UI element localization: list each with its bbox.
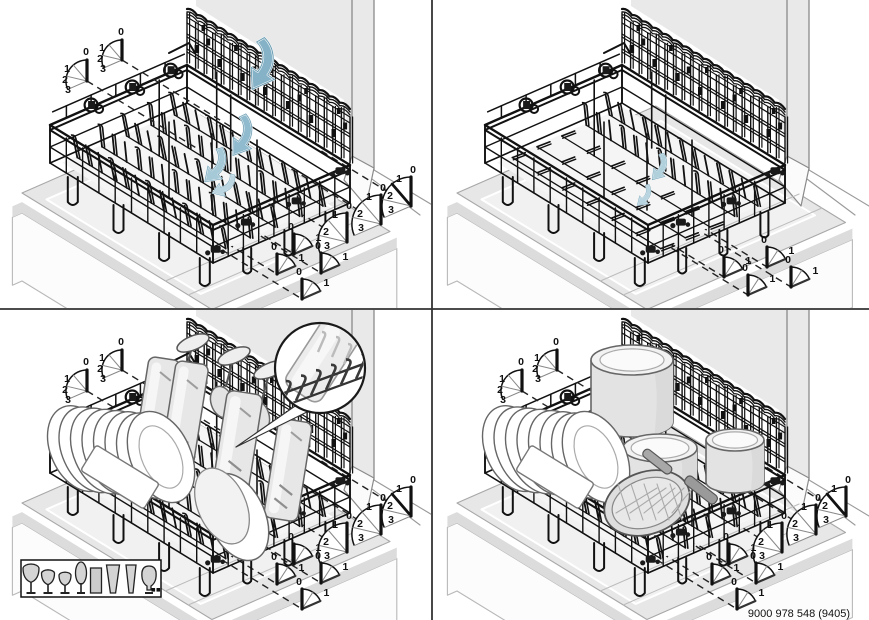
svg-text:1: 1 xyxy=(396,173,402,185)
svg-text:3: 3 xyxy=(324,550,330,562)
svg-text:0: 0 xyxy=(380,182,386,194)
svg-text:0: 0 xyxy=(83,356,89,368)
svg-text:0: 0 xyxy=(271,241,277,253)
svg-text:3: 3 xyxy=(65,84,71,96)
svg-text:2: 2 xyxy=(357,208,363,220)
svg-text:1: 1 xyxy=(332,519,338,531)
svg-text:3: 3 xyxy=(388,514,394,526)
svg-text:2: 2 xyxy=(387,190,393,202)
svg-text:9000 978 548 (9405): 9000 978 548 (9405) xyxy=(748,608,850,620)
svg-text:0: 0 xyxy=(718,244,724,256)
svg-text:1: 1 xyxy=(767,519,773,531)
svg-text:1: 1 xyxy=(342,251,348,263)
svg-text:0: 0 xyxy=(296,576,302,588)
svg-text:0: 0 xyxy=(288,531,294,543)
svg-text:1: 1 xyxy=(831,483,837,495)
svg-text:1: 1 xyxy=(777,561,783,573)
svg-text:0: 0 xyxy=(346,200,352,212)
svg-text:1: 1 xyxy=(812,265,818,277)
svg-text:3: 3 xyxy=(358,532,364,544)
svg-text:0: 0 xyxy=(781,510,787,522)
svg-text:3: 3 xyxy=(823,514,829,526)
svg-text:0: 0 xyxy=(315,550,321,562)
svg-text:1: 1 xyxy=(342,561,348,573)
svg-text:1: 1 xyxy=(323,277,329,289)
svg-text:0: 0 xyxy=(723,531,729,543)
svg-text:0: 0 xyxy=(731,576,737,588)
svg-text:1: 1 xyxy=(366,501,372,513)
svg-text:1: 1 xyxy=(801,501,807,513)
svg-text:0: 0 xyxy=(553,336,559,348)
svg-text:1: 1 xyxy=(323,587,329,599)
svg-text:1: 1 xyxy=(332,209,338,221)
svg-text:2: 2 xyxy=(792,518,798,530)
svg-text:1: 1 xyxy=(769,273,775,285)
svg-text:0: 0 xyxy=(83,46,89,58)
svg-text:1: 1 xyxy=(298,252,304,264)
svg-text:3: 3 xyxy=(324,240,330,252)
svg-text:2: 2 xyxy=(323,536,329,548)
svg-text:0: 0 xyxy=(845,474,851,486)
svg-text:2: 2 xyxy=(323,226,329,238)
svg-text:3: 3 xyxy=(535,373,541,385)
svg-text:3: 3 xyxy=(500,394,506,406)
svg-text:0: 0 xyxy=(380,492,386,504)
svg-text:2: 2 xyxy=(822,500,828,512)
svg-text:0: 0 xyxy=(296,266,302,278)
svg-text:0: 0 xyxy=(761,234,767,246)
svg-text:1: 1 xyxy=(733,562,739,574)
svg-text:0: 0 xyxy=(815,492,821,504)
svg-text:3: 3 xyxy=(388,204,394,216)
svg-text:3: 3 xyxy=(793,532,799,544)
svg-text:2: 2 xyxy=(758,536,764,548)
svg-text:1: 1 xyxy=(298,562,304,574)
svg-text:3: 3 xyxy=(65,394,71,406)
svg-text:3: 3 xyxy=(100,373,106,385)
svg-text:0: 0 xyxy=(706,551,712,563)
svg-text:3: 3 xyxy=(358,222,364,234)
svg-text:3: 3 xyxy=(759,550,765,562)
svg-text:1: 1 xyxy=(366,191,372,203)
svg-text:0: 0 xyxy=(785,254,791,266)
svg-text:0: 0 xyxy=(742,262,748,274)
svg-text:0: 0 xyxy=(118,26,124,38)
svg-text:0: 0 xyxy=(118,336,124,348)
svg-text:0: 0 xyxy=(271,551,277,563)
svg-text:0: 0 xyxy=(410,474,416,486)
svg-text:1: 1 xyxy=(758,587,764,599)
svg-text:0: 0 xyxy=(346,510,352,522)
svg-text:0: 0 xyxy=(750,550,756,562)
svg-text:0: 0 xyxy=(315,240,321,252)
svg-text:0: 0 xyxy=(410,164,416,176)
svg-text:2: 2 xyxy=(357,518,363,530)
svg-text:0: 0 xyxy=(288,221,294,233)
svg-text:1: 1 xyxy=(396,483,402,495)
svg-text:3: 3 xyxy=(100,63,106,75)
svg-text:0: 0 xyxy=(518,356,524,368)
svg-text:2: 2 xyxy=(387,500,393,512)
